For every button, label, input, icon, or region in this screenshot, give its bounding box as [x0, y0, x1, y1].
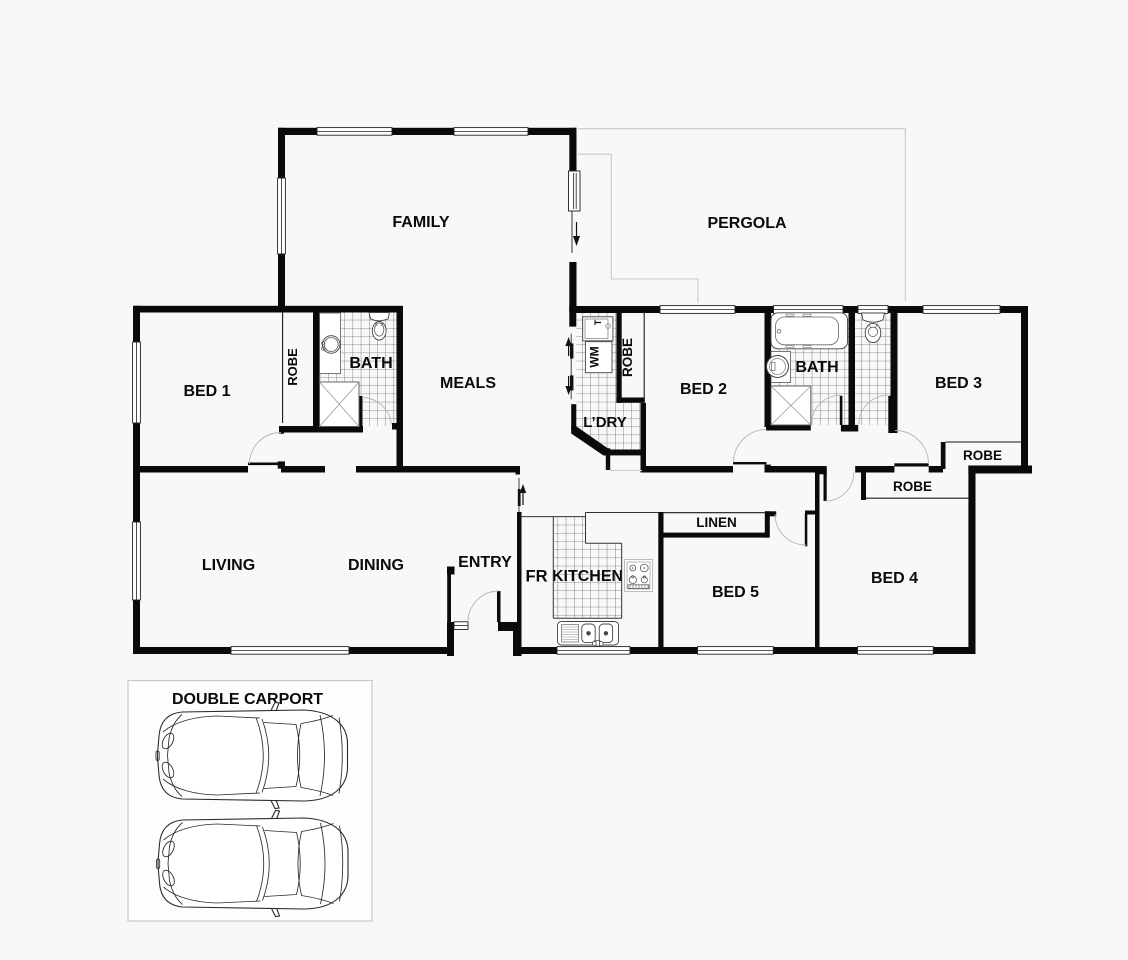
svg-text:LINEN: LINEN [696, 515, 737, 530]
svg-text:ROBE: ROBE [963, 448, 1002, 463]
svg-text:BED 4: BED 4 [871, 570, 918, 587]
svg-text:T: T [593, 319, 603, 325]
svg-text:ROBE: ROBE [620, 338, 635, 377]
svg-text:BATH: BATH [795, 359, 838, 376]
svg-text:BED 5: BED 5 [712, 584, 759, 601]
svg-text:MEALS: MEALS [440, 375, 496, 392]
svg-text:ROBE: ROBE [285, 348, 300, 386]
svg-text:DOUBLE CARPORT: DOUBLE CARPORT [172, 691, 323, 708]
svg-text:FR: FR [526, 568, 548, 586]
svg-text:BED 1: BED 1 [183, 383, 230, 400]
svg-text:FAMILY: FAMILY [392, 214, 450, 231]
svg-text:LIVING: LIVING [202, 557, 255, 574]
svg-text:ROBE: ROBE [893, 479, 932, 494]
svg-text:BATH: BATH [349, 355, 392, 372]
svg-text:BED 2: BED 2 [680, 381, 727, 398]
svg-text:PERGOLA: PERGOLA [707, 215, 787, 232]
svg-text:DINING: DINING [348, 557, 404, 574]
svg-text:BED 3: BED 3 [935, 375, 982, 392]
svg-text:KITCHEN: KITCHEN [552, 568, 623, 585]
svg-text:WM: WM [588, 346, 602, 367]
svg-text:ENTRY: ENTRY [458, 554, 512, 571]
svg-text:L’DRY: L’DRY [583, 414, 627, 431]
